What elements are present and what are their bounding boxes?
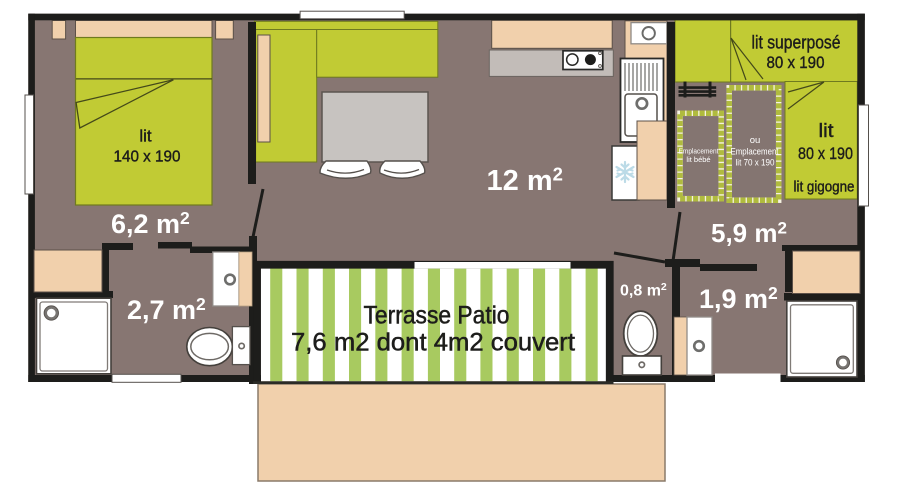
svg-text:lit: lit	[819, 120, 835, 142]
svg-text:lit bébé: lit bébé	[686, 155, 710, 164]
svg-text:80 x 190: 80 x 190	[798, 145, 853, 163]
svg-text:Emplacement: Emplacement	[731, 146, 779, 157]
svg-text:7,6 m2 dont 4m2 couvert: 7,6 m2 dont 4m2 couvert	[291, 329, 575, 357]
svg-text:2,7 m2: 2,7 m2	[127, 294, 206, 325]
svg-text:12 m2: 12 m2	[487, 164, 563, 198]
svg-text:ou: ou	[750, 135, 761, 146]
svg-text:6,2 m2: 6,2 m2	[111, 208, 190, 239]
svg-text:Terrasse Patio: Terrasse Patio	[364, 302, 510, 330]
svg-text:0,8 m2: 0,8 m2	[620, 281, 667, 300]
svg-text:lit 70 x 190: lit 70 x 190	[736, 157, 775, 167]
svg-text:80 x 190: 80 x 190	[767, 54, 825, 72]
svg-text:5,9 m2: 5,9 m2	[711, 218, 787, 248]
svg-text:lit superposé: lit superposé	[752, 33, 841, 53]
svg-text:140 x 190: 140 x 190	[114, 149, 181, 166]
svg-text:1,9 m2: 1,9 m2	[699, 283, 778, 314]
svg-text:lit: lit	[139, 127, 152, 146]
svg-text:lit gigogne: lit gigogne	[794, 179, 855, 196]
